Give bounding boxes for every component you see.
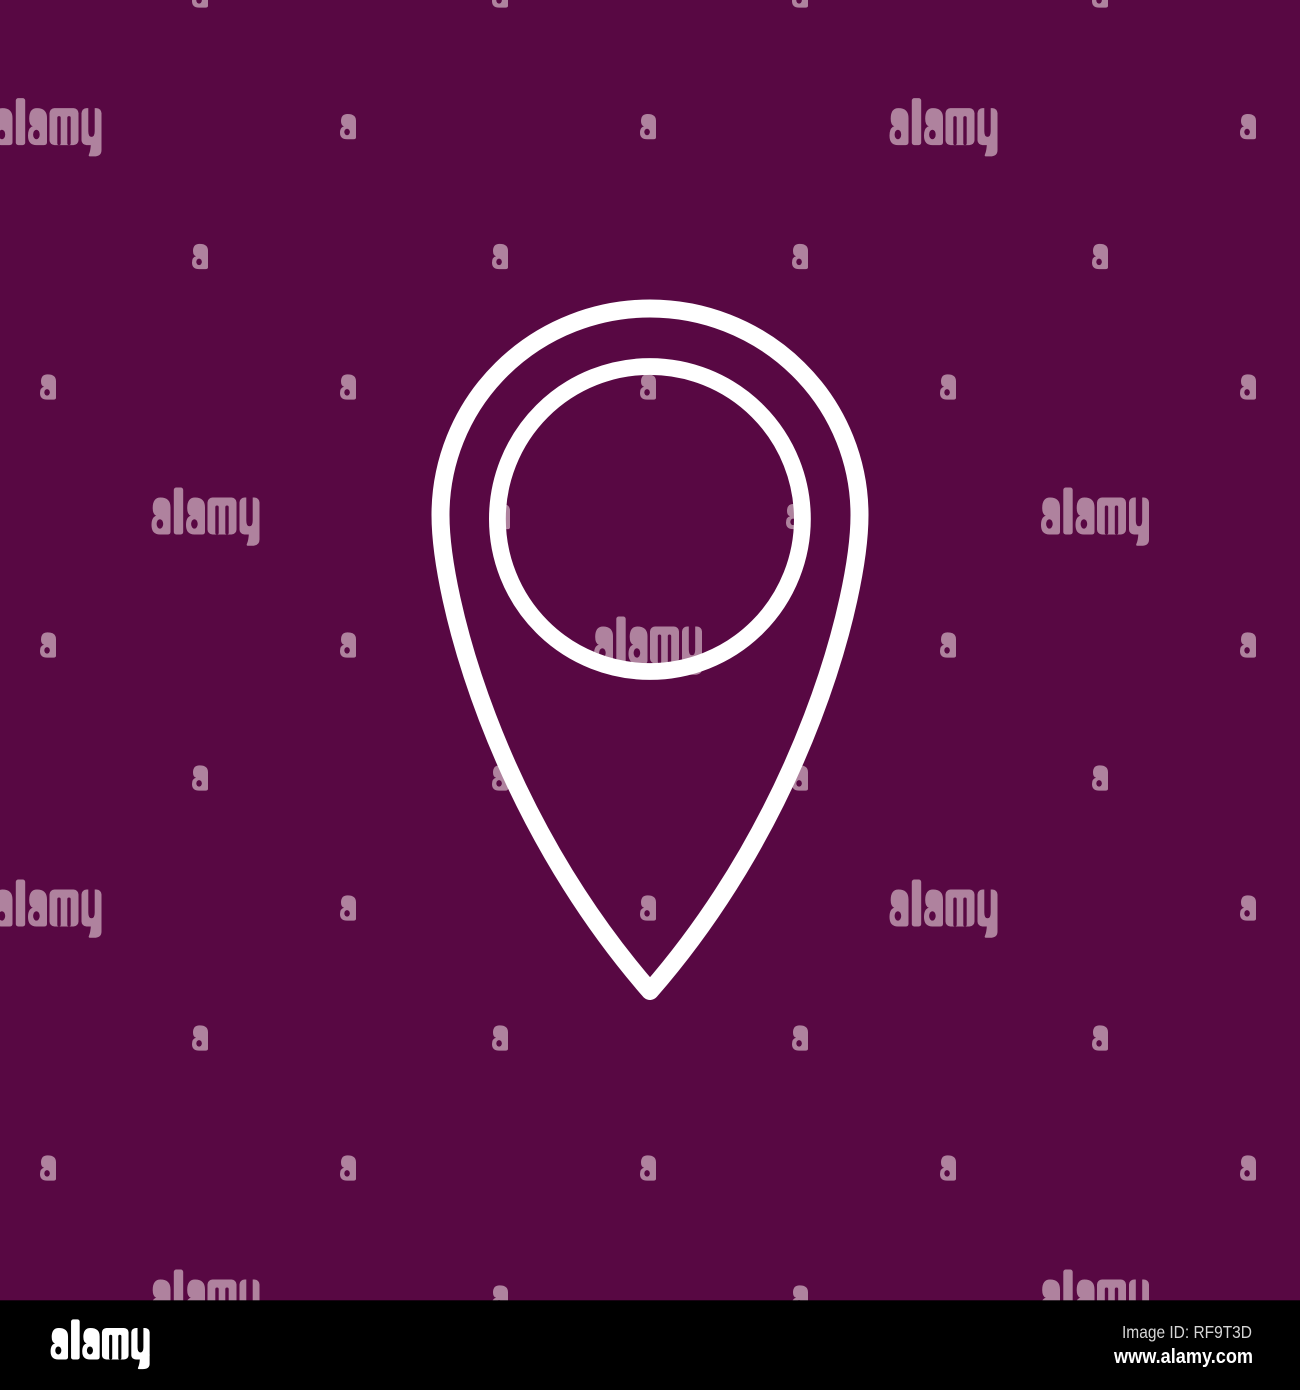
svg-text:www.alamy.com: www.alamy.com (1113, 1346, 1253, 1368)
svg-text:Image ID: RF9T3D: Image ID: RF9T3D (1122, 1322, 1252, 1342)
